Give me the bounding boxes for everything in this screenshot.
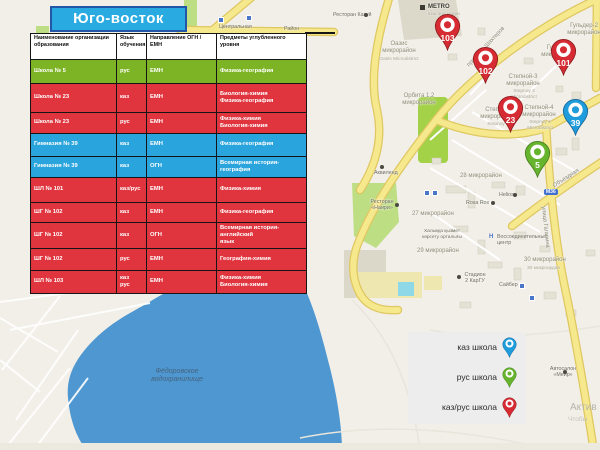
cell-name: ШГ № 102 [31, 249, 117, 271]
transit-icon [246, 15, 252, 21]
hospital-icon: Н [489, 234, 493, 241]
cell-subjects: География-химия [217, 249, 307, 271]
col-header-lang: Язык обучения [117, 34, 147, 60]
metro-store-icon [420, 5, 425, 10]
transit-icon [424, 190, 430, 196]
cell-name: Школа № 23 [31, 84, 117, 113]
table-row: ШЛ № 101каз/русЕМНФизика-химия [31, 178, 307, 203]
cell-direction: ЕМН [147, 271, 217, 294]
poi-helios: Helios [499, 192, 514, 198]
svg-text:23: 23 [506, 115, 516, 125]
cell-lang: каз [117, 203, 147, 223]
road-oazis [360, 0, 391, 190]
district-28: 28 микрорайон [460, 173, 502, 180]
cell-lang: каз/рус [117, 178, 147, 203]
cell-direction: ОГН [147, 223, 217, 249]
cell-direction: ОГН [147, 157, 217, 178]
svg-text:39: 39 [571, 118, 581, 128]
cell-lang: рус [117, 60, 147, 84]
marker-school-23[interactable]: 23 [497, 95, 524, 133]
fuel-icon [513, 193, 517, 197]
cell-lang: каз [117, 223, 147, 249]
label-fedorovskoye-reservoir: Фёдоровское водохранилище [134, 368, 220, 385]
svg-text:101: 101 [556, 58, 571, 68]
legend-label: рус школа [457, 372, 497, 382]
transit-icon [432, 190, 438, 196]
poi-sayber: Сайбер [499, 282, 518, 288]
cell-name: ШГ № 102 [31, 223, 117, 249]
marker-school-102[interactable]: 102 [472, 46, 499, 84]
district-stepnoy3: Степной-3 микрорайон [500, 74, 546, 88]
cell-direction: ЕМН [147, 203, 217, 223]
cell-name: Гимназия № 39 [31, 157, 117, 178]
restaurant-icon [491, 201, 495, 205]
col-header-name: Наименование организации образования [31, 34, 117, 60]
poi-metro: METRO [428, 4, 450, 11]
cell-name: Школа № 5 [31, 60, 117, 84]
col-header-direction: Направление ОГН /ЕМН [147, 34, 217, 60]
legend-label: каз школа [457, 342, 497, 352]
poi-akvilend: Аквиленд [374, 170, 398, 176]
label-rayon: Район [284, 26, 299, 32]
marker-school-103[interactable]: 103 [434, 13, 461, 51]
table-row: ШГ № 102казОГНВсемирная история-английск… [31, 223, 307, 249]
cell-name: ШЛ № 103 [31, 271, 117, 294]
cell-subjects: Физика-география [217, 203, 307, 223]
cell-subjects: Всемирная история-география [217, 157, 307, 178]
marker-school-5[interactable]: 5 [524, 140, 551, 178]
cell-lang: рус [117, 113, 147, 134]
map-canvas[interactable]: Центральная Район Ресторан Казуй METRO к… [0, 0, 600, 450]
district-oazis-en: Oasis Microdistrict [372, 57, 426, 63]
legend-item-kaz-rus: каз/рус школа [408, 392, 526, 422]
table-row: Гимназия № 39казОГНВсемирная история-гео… [31, 157, 307, 178]
cell-subjects: Биология-химия Физика-география [217, 84, 307, 113]
cell-lang: каз [117, 157, 147, 178]
map-bottom-strip [0, 443, 600, 450]
table-top-extension-line [305, 32, 335, 34]
restaurant-icon [364, 13, 368, 17]
cell-subjects: Всемирная история-английский язык [217, 223, 307, 249]
cell-subjects: Физика-химия Биология-химия [217, 113, 307, 134]
table-row: ШЛ № 103каз русЕМНФизика-химия Биология-… [31, 271, 307, 294]
district-oazis: Оазис микрорайон [376, 41, 422, 55]
cell-name: ШЛ № 101 [31, 178, 117, 203]
table-row: Школа № 23казЕМНБиология-химия Физика-ге… [31, 84, 307, 113]
district-29: 29 микрорайон [417, 248, 459, 255]
cell-direction: ЕМН [147, 113, 217, 134]
sayber-icon [519, 283, 525, 289]
district-gulder2: Гульдер-2 микрорайон [562, 23, 600, 37]
aquapark-icon [380, 165, 384, 169]
cell-direction: ЕМН [147, 178, 217, 203]
red-pin-icon [502, 397, 517, 418]
table-row: Школа № 23русЕМНФизика-химия Биология-хи… [31, 113, 307, 134]
cell-name: ШГ № 102 [31, 203, 117, 223]
label-tsentralnaya: Центральная [219, 24, 252, 30]
legend-label: каз/рус школа [442, 402, 497, 412]
stadium-icon [457, 275, 461, 279]
district-30: 30 микрорайон [524, 257, 566, 264]
cell-subjects: Физика-химия [217, 178, 307, 203]
svg-text:5: 5 [535, 160, 540, 170]
car-dealer-icon [563, 370, 567, 374]
table-row: Школа № 5русЕМНФизика-география [31, 60, 307, 84]
table-row: Гимназия № 39казЕМНФизика-география [31, 134, 307, 157]
schools-table: Наименование организации образования Язы… [30, 33, 307, 294]
cell-direction: ЕМН [147, 60, 217, 84]
cell-direction: ЕМН [147, 134, 217, 157]
district-orbita: Орбита 1,2 микрорайон [396, 93, 442, 107]
transit-icon [218, 17, 224, 23]
restaurant-icon [395, 203, 399, 207]
district-30-kz: 30 микроаудан [527, 266, 560, 272]
transit-icon [529, 295, 535, 301]
district-27: 27 микрорайон [412, 211, 454, 218]
district-title: Юго-восток [50, 6, 187, 32]
table-header-row: Наименование организации образования Язы… [31, 34, 307, 60]
cell-name: Школа № 23 [31, 113, 117, 134]
legend-item-rus: рус школа [408, 362, 526, 392]
cell-direction: ЕМН [147, 249, 217, 271]
cell-lang: рус [117, 249, 147, 271]
cell-subjects: Физика-химия Биология-химия [217, 271, 307, 294]
table-row: ШГ № 102казЕМНФизика-география [31, 203, 307, 223]
poi-vossoedinitelny-centr: Воссоединительный центр [497, 234, 547, 247]
cell-lang: каз [117, 84, 147, 113]
blue-pin-icon [502, 337, 517, 358]
cell-lang: каз рус [117, 271, 147, 294]
cell-lang: каз [117, 134, 147, 157]
svg-text:103: 103 [440, 33, 455, 43]
col-header-subjects: Предметы углубленного уровня [217, 34, 307, 60]
poi-rosa-rox: Rosa Rox [466, 200, 489, 206]
legend-item-kaz: каз школа [408, 332, 526, 362]
watermark-aktiv: Актив [570, 402, 600, 414]
marker-school-101[interactable]: 101 [550, 38, 577, 76]
cell-subjects: Физика-география [217, 60, 307, 84]
watermark-chtoby: Чтобы [568, 416, 600, 424]
cell-subjects: Физика-география [217, 134, 307, 157]
svg-text:102: 102 [478, 66, 493, 76]
district-stepnoy4-en: Stepnoy 4 Microdistrict [519, 120, 561, 132]
cell-direction: ЕМН [147, 84, 217, 113]
poi-tson: Халыққа қызмет көрсету орталығы [417, 229, 467, 241]
marker-school-39[interactable]: 39 [562, 98, 589, 136]
poi-stadion-kargu: Стадион 2 КарГУ [459, 272, 491, 285]
green-pin-icon [502, 367, 517, 388]
cell-name: Гимназия № 39 [31, 134, 117, 157]
table-row: ШГ № 102русЕМНГеография-химия [31, 249, 307, 271]
route-badge-m36: М36 [544, 189, 558, 195]
map-legend: каз школа рус школа каз/рус школа [408, 332, 526, 424]
